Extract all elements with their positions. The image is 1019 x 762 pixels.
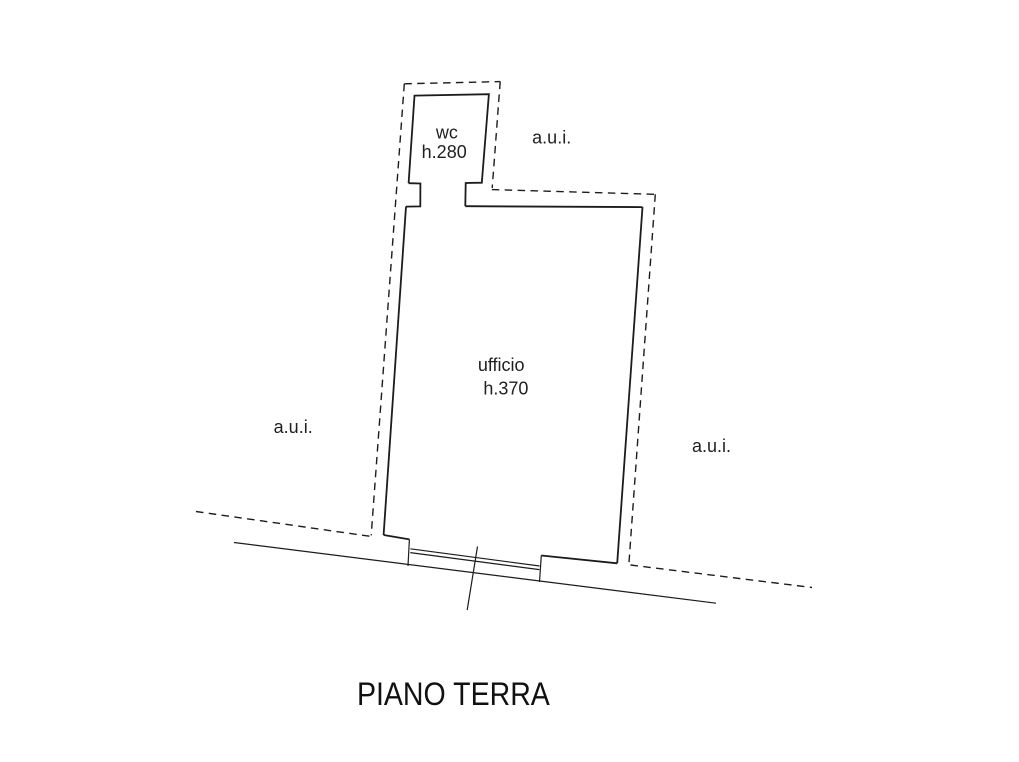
svg-text:wc: wc [435,122,458,142]
svg-text:a.u.i.: a.u.i. [274,417,313,437]
svg-text:a.u.i.: a.u.i. [532,128,571,148]
svg-text:PIANO TERRA: PIANO TERRA [357,675,550,712]
svg-text:a.u.i.: a.u.i. [692,436,731,456]
svg-text:h.280: h.280 [422,142,467,162]
svg-text:h.370: h.370 [483,379,528,399]
svg-text:ufficio: ufficio [478,355,525,375]
